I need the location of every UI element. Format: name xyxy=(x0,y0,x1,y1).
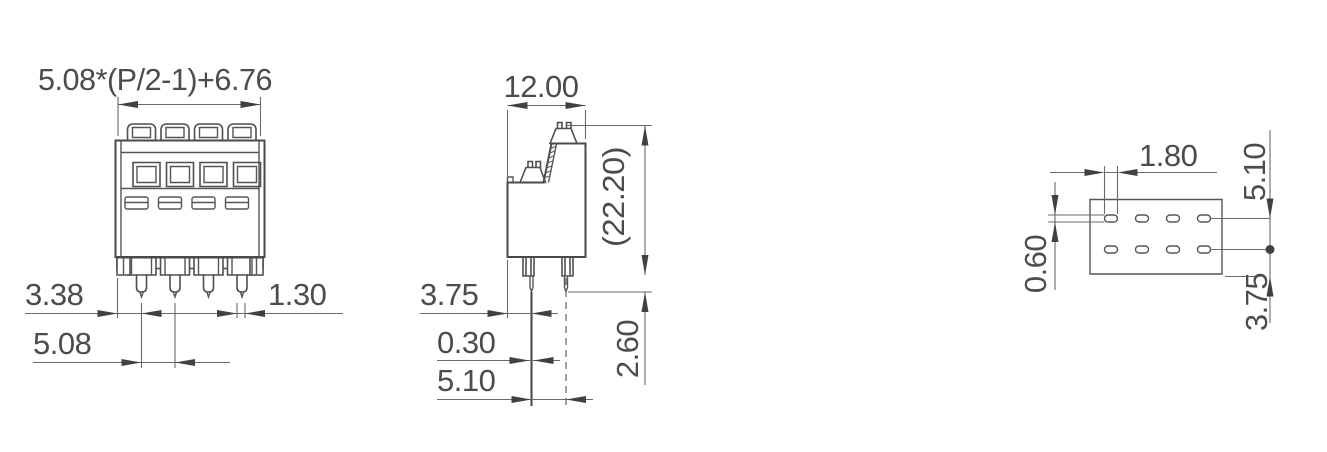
side-pins xyxy=(523,257,573,276)
dim-label-pin-protrusion: 2.60 xyxy=(610,320,645,379)
dim-front-width-formula: 5.08*(P/2-1)+6.76 xyxy=(38,62,272,136)
dim-footprint-row-to-edge: 3.75 xyxy=(1225,273,1274,331)
dim-side-pin-protrusion: 2.60 xyxy=(568,292,652,385)
dim-label-pin-thickness: 0.30 xyxy=(437,325,496,360)
front-push-buttons-inner xyxy=(133,128,252,138)
dim-front-pin-width: 1.30 xyxy=(168,277,343,318)
footprint-board-outline xyxy=(1090,200,1222,275)
dim-label-row-spacing: 5.10 xyxy=(437,363,496,398)
dim-label-overall-height: (22.20) xyxy=(596,147,631,247)
side-view: 12.00 (22.20) 2.60 3.75 0.30 xyxy=(420,69,652,406)
front-body-outline xyxy=(116,141,265,258)
footprint-holes xyxy=(1105,215,1211,253)
hole-slot xyxy=(1167,215,1180,222)
arrowhead xyxy=(642,292,649,312)
dimension-origin-dot xyxy=(1266,245,1275,254)
dim-label-body-depth: 12.00 xyxy=(503,69,578,104)
dim-label-slot-width: 1.80 xyxy=(1139,138,1198,173)
dim-label-row-to-edge: 3.75 xyxy=(1239,273,1274,331)
hole-slot xyxy=(1167,246,1180,253)
front-solder-pins xyxy=(137,275,248,292)
dim-side-pin-thickness: 0.30 xyxy=(437,325,560,364)
front-test-slots xyxy=(125,197,249,209)
front-body-inner-walls xyxy=(121,141,259,258)
dim-label-row-spacing: 5.10 xyxy=(1237,143,1272,202)
dim-front-pin-pitch: 5.08 xyxy=(33,303,230,368)
dim-label-pin-pitch: 5.08 xyxy=(33,326,91,361)
extension-lines xyxy=(237,303,245,318)
dim-side-row-spacing: 5.10 xyxy=(437,363,593,403)
dim-footprint-slot-height: 0.60 xyxy=(1018,182,1105,293)
footprint-row-reference-lines xyxy=(1211,219,1270,250)
extension-lines xyxy=(1105,166,1118,214)
side-lower-clamp xyxy=(520,162,546,183)
dim-side-overall-height: (22.20) xyxy=(566,126,652,276)
footprint-view: 1.80 0.60 5.10 3.75 xyxy=(1018,130,1275,331)
drawing-svg: 5.08*(P/2-1)+6.76 3.38 1.30 5.08 xyxy=(0,0,1327,452)
dim-label-edge-to-pin: 3.38 xyxy=(25,277,83,312)
hole-slot xyxy=(1136,215,1149,222)
dim-label-width-formula: 5.08*(P/2-1)+6.76 xyxy=(38,62,272,97)
dim-side-body-depth: 12.00 xyxy=(503,69,585,176)
technical-drawing: 5.08*(P/2-1)+6.76 3.38 1.30 5.08 xyxy=(0,0,1327,452)
dim-label-pin-width: 1.30 xyxy=(268,277,327,312)
extension-lines xyxy=(1048,215,1105,222)
hole-slot xyxy=(1136,246,1149,253)
front-terminal-windows-inner xyxy=(137,167,257,183)
dim-label-edge-to-pin-row: 3.75 xyxy=(420,277,478,312)
dim-label-slot-height: 0.60 xyxy=(1018,235,1053,294)
hole-slot xyxy=(1105,215,1118,222)
front-view: 5.08*(P/2-1)+6.76 3.38 1.30 5.08 xyxy=(25,62,343,368)
dim-footprint-slot-width: 1.80 xyxy=(1050,138,1217,214)
side-body-outline xyxy=(508,144,586,258)
front-pin-tips xyxy=(140,293,244,298)
side-pin-wires xyxy=(530,276,568,292)
dim-side-edge-to-pin-row: 3.75 xyxy=(420,260,558,318)
hole-slot xyxy=(1198,246,1211,253)
hole-slot xyxy=(1105,246,1118,253)
hole-slot xyxy=(1198,215,1211,222)
